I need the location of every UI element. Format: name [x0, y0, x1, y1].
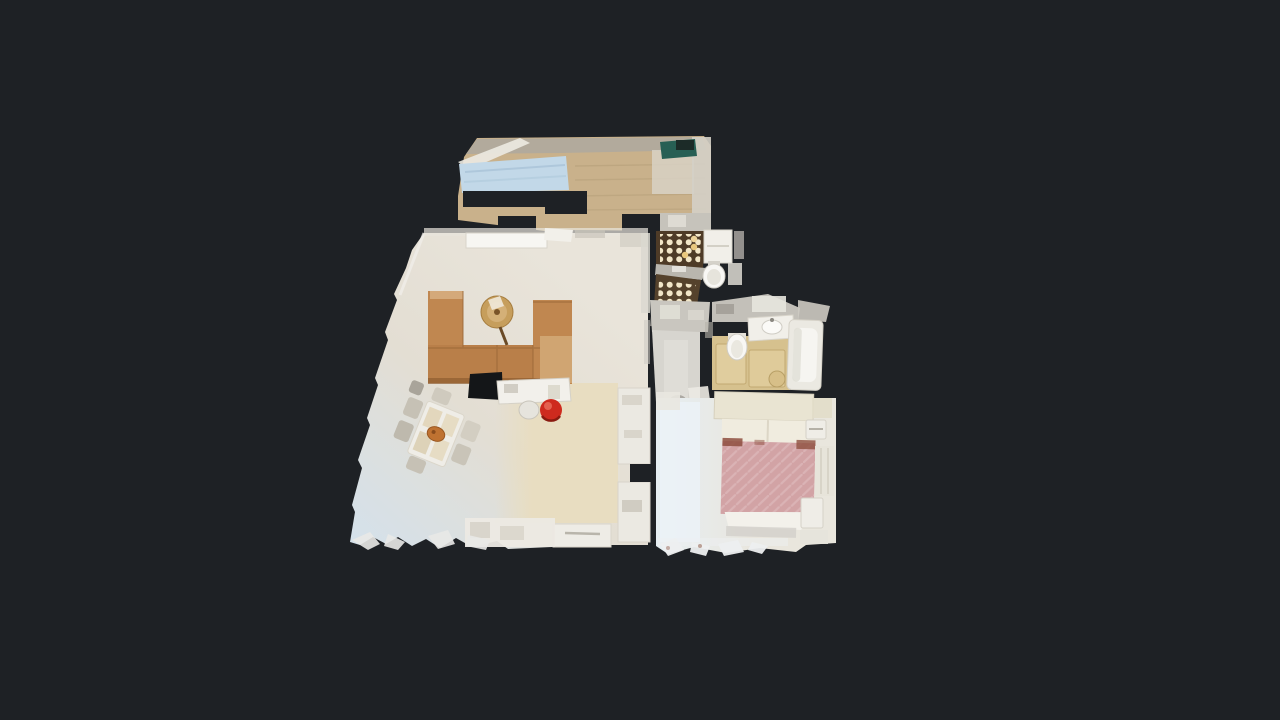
wardrobe-top-left — [656, 392, 680, 410]
red-stool — [540, 399, 562, 421]
wall-fragment — [716, 304, 734, 314]
fringe-detail — [666, 546, 670, 550]
wall-fragment — [575, 230, 605, 238]
wall-fragment — [660, 305, 680, 319]
duvet-trim — [722, 438, 742, 447]
counter-sink — [622, 500, 642, 512]
island-detail — [548, 385, 560, 399]
wardrobe-right — [815, 446, 834, 496]
sofa-chaise — [428, 291, 463, 349]
toilet-seat — [707, 269, 721, 285]
wall-fragment — [752, 296, 786, 312]
bath-stool — [769, 371, 785, 387]
bathtub — [787, 319, 823, 390]
dresser-corner — [812, 398, 832, 418]
toilet-seat — [731, 340, 743, 358]
wall-fragment — [734, 231, 744, 259]
red-stool-highlight — [544, 402, 552, 410]
glass-glint — [672, 266, 686, 272]
room-corridor[interactable] — [458, 136, 711, 233]
viewer-canvas[interactable] — [0, 0, 1280, 720]
teal-mat-dark — [676, 140, 694, 150]
wall-fragment — [800, 530, 828, 544]
scan-hole — [630, 464, 652, 482]
bed-headboard — [714, 392, 814, 422]
room-bedroom[interactable] — [656, 392, 836, 556]
grain-line — [575, 209, 706, 210]
sink-vanity — [748, 315, 794, 341]
wall-fragment — [668, 215, 686, 227]
duvet-trim — [796, 440, 815, 449]
duvet-trim — [754, 440, 764, 445]
island-sink — [504, 384, 518, 393]
kitchen-island — [497, 378, 571, 404]
scan-hole — [545, 191, 587, 214]
counter-detail — [624, 430, 642, 438]
room-bathroom[interactable] — [705, 294, 830, 391]
wall-fragment — [688, 310, 704, 320]
right-wall — [644, 320, 650, 364]
sink-bowl — [762, 320, 782, 334]
warm-dot — [682, 252, 688, 258]
shelf-fragment — [544, 228, 573, 242]
right-wall — [641, 233, 650, 313]
toilet-bathroom — [727, 333, 747, 360]
dollhouse-model[interactable] — [0, 0, 1280, 720]
fringe-detail — [698, 544, 702, 548]
faucet — [770, 318, 774, 322]
sideboard-detail — [470, 522, 490, 538]
scan-hole — [463, 191, 545, 207]
counter-bottom — [553, 524, 611, 547]
nightstand-bottom — [801, 498, 823, 528]
drawer-handle — [565, 533, 600, 534]
warm-dot — [691, 236, 697, 242]
pillow-split — [767, 420, 768, 442]
wall-fragment — [705, 322, 713, 338]
counter-detail — [622, 395, 642, 405]
white-stool — [519, 401, 539, 419]
wall-fragment — [728, 263, 742, 285]
bed-foot-shadow — [726, 526, 796, 538]
floor-light-strip — [660, 402, 700, 542]
table-center — [494, 309, 500, 315]
sideboard-detail — [500, 526, 524, 540]
warm-dot — [691, 244, 697, 250]
floor-sheen — [664, 340, 688, 400]
media-shelf — [466, 233, 547, 248]
sofa-back-highlight — [430, 291, 463, 299]
sofa-light-cushion — [540, 336, 572, 383]
